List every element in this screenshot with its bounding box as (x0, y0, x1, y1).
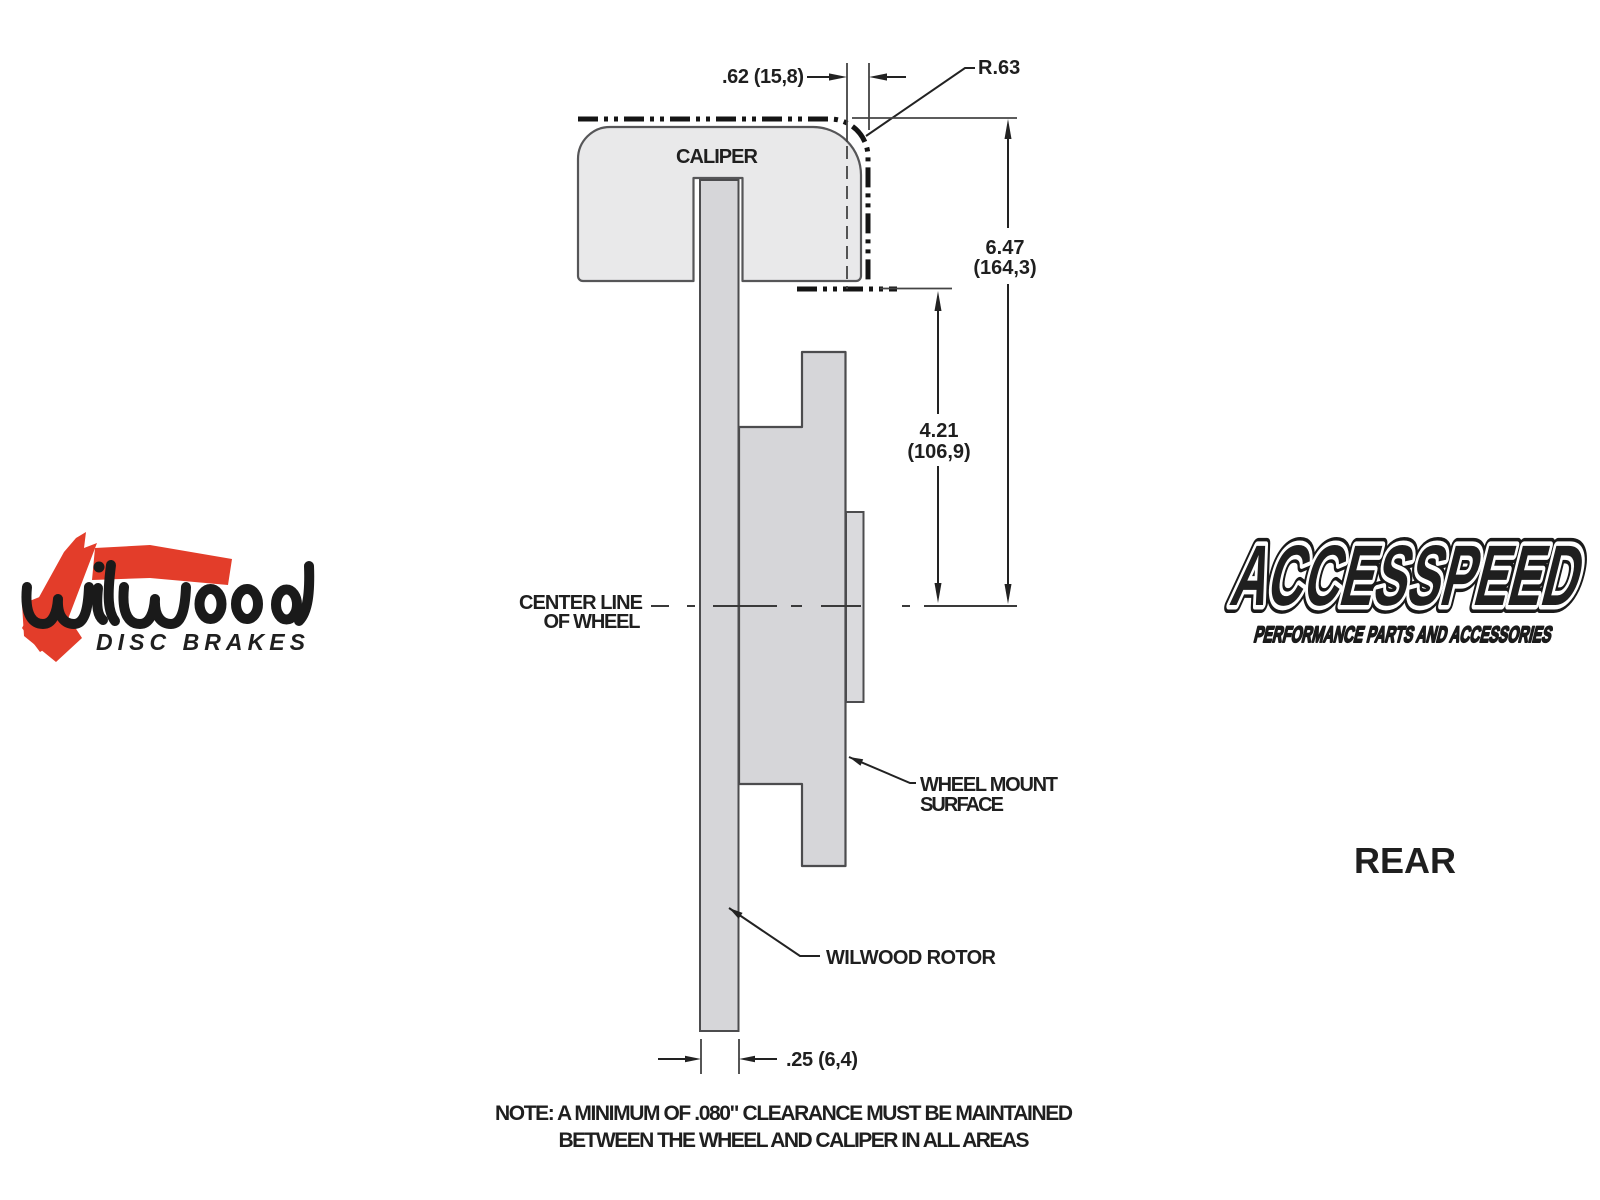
svg-text:.25 (6,4): .25 (6,4) (786, 1049, 858, 1071)
svg-text:OF WHEEL: OF WHEEL (544, 611, 641, 633)
svg-text:6.47: 6.47 (986, 237, 1025, 259)
svg-text:WILWOOD ROTOR: WILWOOD ROTOR (826, 947, 997, 969)
svg-text:4.21: 4.21 (920, 420, 959, 442)
svg-text:(106,9): (106,9) (907, 441, 970, 463)
svg-text:BETWEEN THE WHEEL AND CALIPER: BETWEEN THE WHEEL AND CALIPER IN ALL ARE… (559, 1129, 1030, 1152)
svg-text:PERFORMANCE PARTS AND ACCESSOR: PERFORMANCE PARTS AND ACCESSORIES (1252, 623, 1555, 648)
svg-text:DISC BRAKES: DISC BRAKES (96, 629, 309, 655)
svg-text:REAR: REAR (1354, 840, 1456, 881)
svg-text:R.63: R.63 (978, 57, 1020, 79)
svg-text:(164,3): (164,3) (973, 257, 1036, 279)
svg-text:.62 (15,8): .62 (15,8) (722, 66, 804, 88)
svg-text:SURFACE: SURFACE (920, 794, 1004, 816)
svg-text:ACCESSPEED: ACCESSPEED (1223, 529, 1593, 624)
svg-text:CALIPER: CALIPER (676, 146, 759, 168)
svg-text:NOTE: A MINIMUM OF .080" CLEAR: NOTE: A MINIMUM OF .080" CLEARANCE MUST … (495, 1102, 1073, 1125)
svg-text:WHEEL MOUNT: WHEEL MOUNT (920, 774, 1058, 796)
